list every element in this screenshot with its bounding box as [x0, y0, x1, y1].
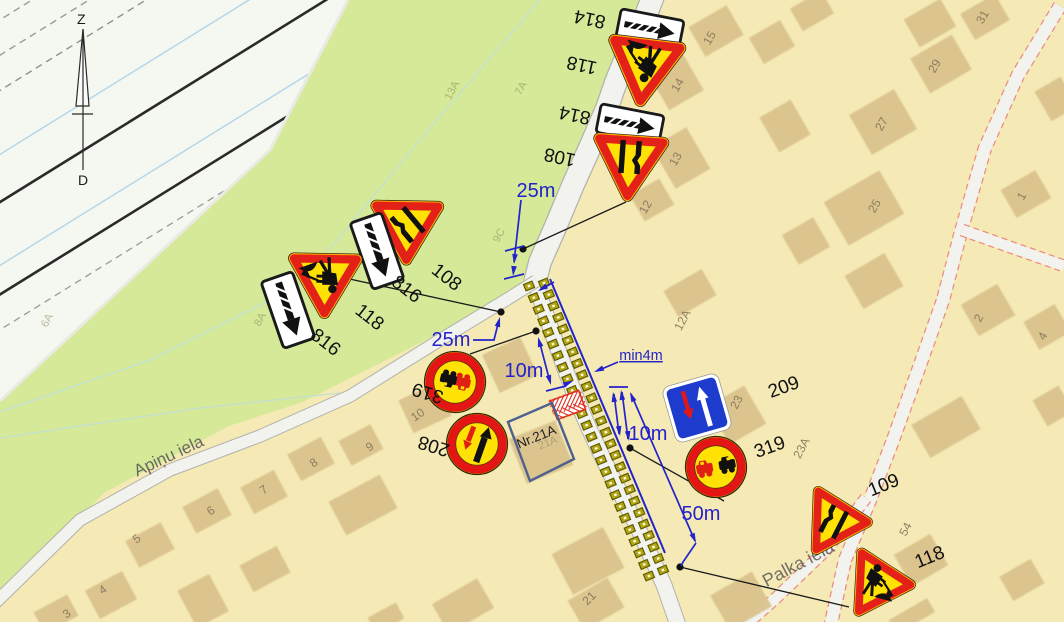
- svg-text:10m: 10m: [505, 360, 544, 382]
- svg-text:Z: Z: [77, 11, 86, 27]
- svg-text:D: D: [78, 172, 88, 188]
- svg-text:25m: 25m: [517, 180, 556, 202]
- svg-text:25m: 25m: [432, 329, 471, 351]
- svg-text:min4m: min4m: [619, 348, 663, 364]
